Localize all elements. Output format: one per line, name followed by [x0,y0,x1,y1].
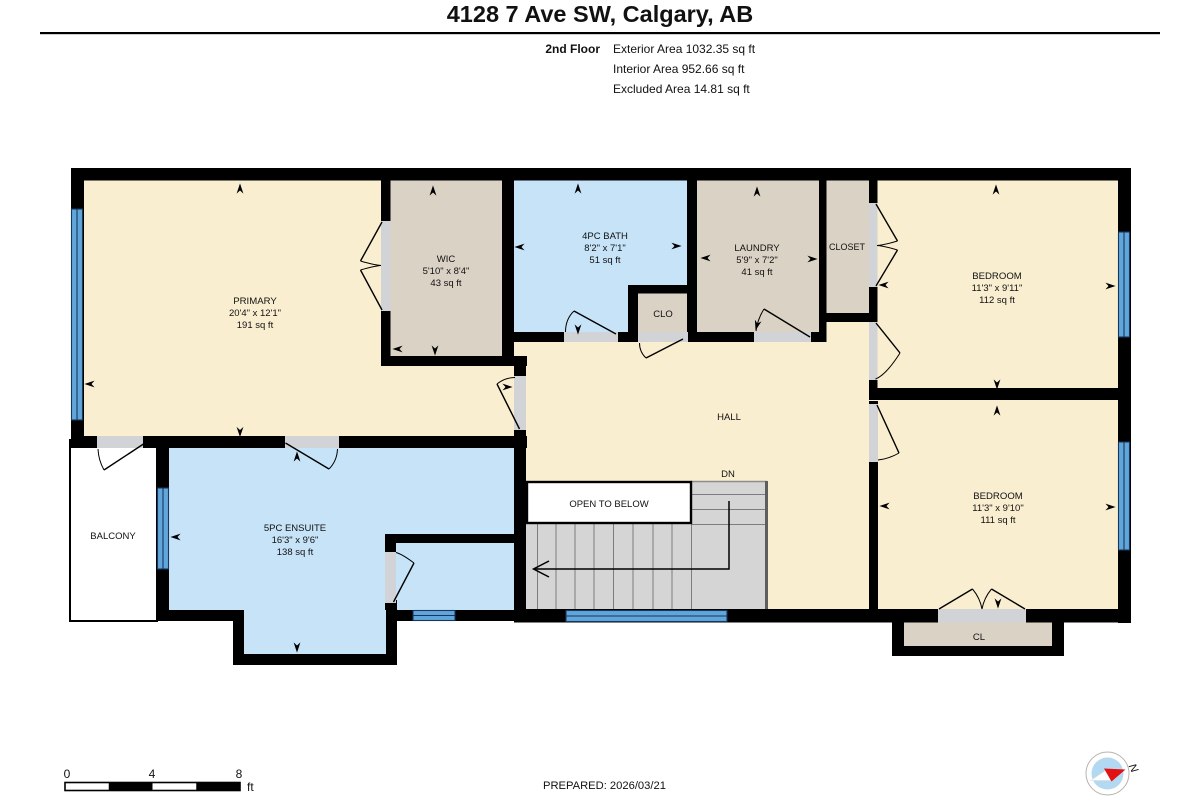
svg-text:11'3" x 9'11": 11'3" x 9'11" [972,283,1023,294]
svg-text:138 sq ft: 138 sq ft [277,547,314,558]
svg-text:5'10" x 8'4": 5'10" x 8'4" [423,266,470,277]
svg-text:2nd Floor: 2nd Floor [545,42,600,56]
svg-text:HALL: HALL [717,412,741,423]
svg-text:112 sq ft: 112 sq ft [979,295,1015,306]
svg-text:DN: DN [721,469,735,480]
svg-text:43 sq ft: 43 sq ft [430,278,462,289]
svg-text:CL: CL [973,632,985,643]
svg-text:BEDROOM: BEDROOM [973,491,1023,502]
svg-text:CLOSET: CLOSET [829,242,866,252]
svg-text:5PC ENSUITE: 5PC ENSUITE [264,523,326,534]
svg-text:0: 0 [64,767,71,781]
svg-text:PRIMARY: PRIMARY [233,296,277,307]
svg-text:BALCONY: BALCONY [90,531,136,542]
svg-text:20'4" x 12'1": 20'4" x 12'1" [229,308,281,319]
svg-text:Excluded Area 14.81 sq ft: Excluded Area 14.81 sq ft [613,82,750,96]
svg-text:16'3" x 9'6": 16'3" x 9'6" [272,535,319,546]
svg-text:Exterior Area 1032.35 sq ft: Exterior Area 1032.35 sq ft [613,42,756,56]
svg-text:191 sq ft: 191 sq ft [237,320,274,331]
svg-text:LAUNDRY: LAUNDRY [734,243,780,254]
svg-text:41 sq ft: 41 sq ft [741,267,773,278]
svg-text:4: 4 [149,767,156,781]
svg-text:4128 7 Ave SW, Calgary, AB: 4128 7 Ave SW, Calgary, AB [447,1,754,27]
svg-text:11'3" x 9'10": 11'3" x 9'10" [972,503,1023,514]
svg-text:111 sq ft: 111 sq ft [980,515,1015,526]
svg-text:8: 8 [236,767,243,781]
svg-text:ft: ft [247,780,254,794]
svg-text:CLO: CLO [653,309,673,320]
svg-text:8'2" x 7'1": 8'2" x 7'1" [584,243,626,254]
svg-text:4PC BATH: 4PC BATH [582,231,628,242]
svg-text:OPEN TO BELOW: OPEN TO BELOW [569,499,648,510]
svg-text:51 sq ft: 51 sq ft [589,255,621,266]
svg-text:WIC: WIC [437,254,456,265]
svg-text:BEDROOM: BEDROOM [972,271,1022,282]
svg-text:5'9" x 7'2": 5'9" x 7'2" [736,255,778,266]
svg-text:PREPARED: 2026/03/21: PREPARED: 2026/03/21 [543,780,666,792]
svg-text:Interior Area 952.66 sq ft: Interior Area 952.66 sq ft [613,62,745,76]
